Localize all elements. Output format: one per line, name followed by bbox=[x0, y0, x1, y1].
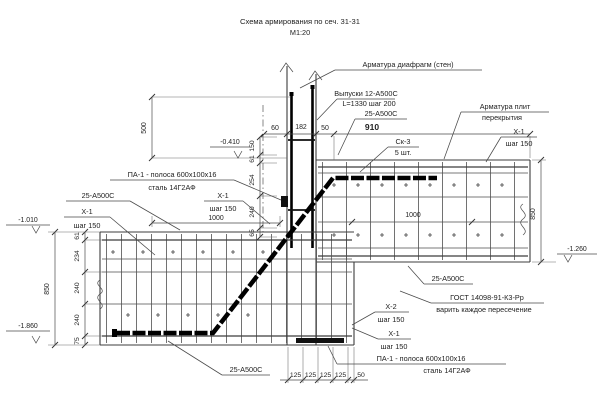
callout-text: шаг 150 bbox=[210, 204, 237, 213]
dim-50: 50 bbox=[357, 372, 365, 379]
elevation-right-bottom-value: -1.260 bbox=[567, 246, 587, 253]
drawing-scale: М1:20 bbox=[290, 28, 310, 37]
dim-anchor-1000-right: 1000 bbox=[405, 212, 420, 219]
callout-x2-bottom: Х-2 шаг 150 bbox=[352, 302, 409, 325]
callout-x1-right: Х-1 шаг 150 bbox=[486, 127, 537, 162]
dim-wall-60: 60 bbox=[271, 125, 279, 132]
dim-outlet-500: 500 bbox=[141, 122, 148, 134]
outlet-bar-head bbox=[290, 92, 294, 96]
callout-text: Х-1 bbox=[81, 207, 92, 216]
elevation-left-bottom-value: -1.860 bbox=[18, 323, 38, 330]
dim-left-seg-240b: 240 bbox=[74, 314, 81, 326]
dim-left-seg-61: 61 bbox=[74, 232, 81, 240]
elevation-arrow-icon bbox=[564, 255, 572, 262]
leader-line bbox=[352, 328, 411, 339]
callout-slab-reinforcement: Арматура плит перекрытия bbox=[444, 102, 549, 159]
callout-text: Ск-3 bbox=[396, 137, 411, 146]
callout-text: Арматура плит bbox=[480, 102, 531, 111]
outlet-bar-head bbox=[311, 85, 315, 89]
dim-125-4: 125 bbox=[335, 372, 347, 379]
callout-text: L=1330 шаг 200 bbox=[342, 99, 395, 108]
callout-text: 5 шт. bbox=[395, 148, 412, 157]
drawing-sheet: Схема армирования по сеч. 31-31 М1:20 bbox=[0, 0, 600, 400]
callout-bar25-right: 25-А500С bbox=[408, 266, 473, 284]
dim-extensions bbox=[334, 136, 530, 160]
callout-text: 25-А500С bbox=[82, 191, 115, 200]
dim-wall-182: 182 bbox=[295, 124, 307, 131]
title-block: Схема армирования по сеч. 31-31 М1:20 bbox=[240, 17, 360, 37]
elevation-upper: -0.410 bbox=[210, 139, 250, 158]
dim-wall-50: 50 bbox=[321, 125, 329, 132]
dim-125-3: 125 bbox=[320, 372, 332, 379]
dim-left-seg-240a: 240 bbox=[74, 282, 81, 294]
elevation-right-bottom: -1.260 bbox=[557, 246, 597, 262]
elevation-arrow-icon bbox=[234, 151, 242, 158]
dim-center-240: 240 bbox=[249, 206, 256, 218]
elevation-left-bottom: -1.860 bbox=[6, 323, 50, 343]
dim-ticks bbox=[52, 229, 88, 348]
callout-gost-weld: ГОСТ 14098-91-К3-Рр варить каждое пересе… bbox=[400, 291, 544, 314]
dim-right-850: 850 bbox=[530, 208, 537, 220]
wall-outlet-bars bbox=[292, 88, 313, 248]
embedded-plate-lower bbox=[296, 338, 344, 343]
callout-text: варить каждое пересечение bbox=[436, 305, 531, 314]
callout-text: Арматура диафрагм (стен) bbox=[362, 60, 453, 69]
dim-center-65: 65 bbox=[249, 229, 256, 237]
dim-span-910: 910 bbox=[365, 122, 379, 132]
callout-text: 25-А500С bbox=[230, 365, 263, 374]
elevation-upper-value: -0.410 bbox=[220, 139, 240, 146]
callout-text: перекрытия bbox=[482, 113, 522, 122]
embedded-plate-upper bbox=[281, 196, 288, 207]
callout-text: сталь 14Г2АФ bbox=[148, 183, 196, 192]
callout-text: Х-1 bbox=[513, 127, 524, 136]
elevation-left-top: -1.010 bbox=[6, 217, 50, 233]
lower-slab-mesh-verticals bbox=[102, 234, 352, 343]
elevation-arrow-icon bbox=[32, 336, 40, 343]
elevation-left-top-value: -1.010 bbox=[18, 217, 38, 224]
reinforcement-drawing: Схема армирования по сеч. 31-31 М1:20 bbox=[0, 0, 600, 400]
callout-text: Выпуски 12-А500С bbox=[334, 89, 397, 98]
dim-extensions bbox=[152, 97, 290, 158]
dim-center-254: 254 bbox=[249, 174, 256, 186]
dim-left-850: 850 bbox=[44, 283, 51, 295]
elevation-arrow-icon bbox=[32, 226, 40, 233]
callout-text: шаг 150 bbox=[378, 315, 405, 324]
callout-text: шаг 150 bbox=[506, 139, 533, 148]
leader-line bbox=[300, 70, 482, 88]
dim-125-2: 125 bbox=[305, 372, 317, 379]
dim-left-seg-75: 75 bbox=[74, 337, 81, 345]
callout-text: 25-А500С bbox=[432, 274, 465, 283]
callout-text: шаг 150 bbox=[74, 221, 101, 230]
drawing-title: Схема армирования по сеч. 31-31 bbox=[240, 17, 360, 26]
callout-text: Х-2 bbox=[385, 302, 396, 311]
sk3-end-anchor bbox=[112, 329, 117, 337]
callout-x1-bottom: Х-1 шаг 150 bbox=[352, 328, 411, 351]
callout-text: ПА-1 - полоса 600х100х16 bbox=[128, 170, 217, 179]
callout-text: Х-1 bbox=[217, 191, 228, 200]
dim-center-61: 61 bbox=[249, 155, 256, 163]
dim-left-seg-234: 234 bbox=[74, 250, 81, 262]
callout-text: 25-А500С bbox=[365, 109, 398, 118]
callout-bar25-bottom: 25-А500С bbox=[168, 341, 270, 375]
callout-diaphragm-reinforcement: Арматура диафрагм (стен) bbox=[300, 60, 482, 88]
dim-anchor-1000-left: 1000 bbox=[208, 215, 223, 222]
callout-pa1-lower: ПА-1 - полоса 600х100х16 сталь 14Г2АФ bbox=[328, 346, 506, 375]
callout-text: Х-1 bbox=[388, 329, 399, 338]
callout-text: шаг 150 bbox=[381, 342, 408, 351]
dim-center-150: 150 bbox=[249, 140, 256, 152]
callout-text: ПА-1 - полоса 600х100х16 bbox=[377, 354, 466, 363]
callout-text: ГОСТ 14098-91-К3-Рр bbox=[450, 293, 524, 302]
dim-125-1: 125 bbox=[290, 372, 302, 379]
callout-text: сталь 14Г2АФ bbox=[423, 366, 471, 375]
